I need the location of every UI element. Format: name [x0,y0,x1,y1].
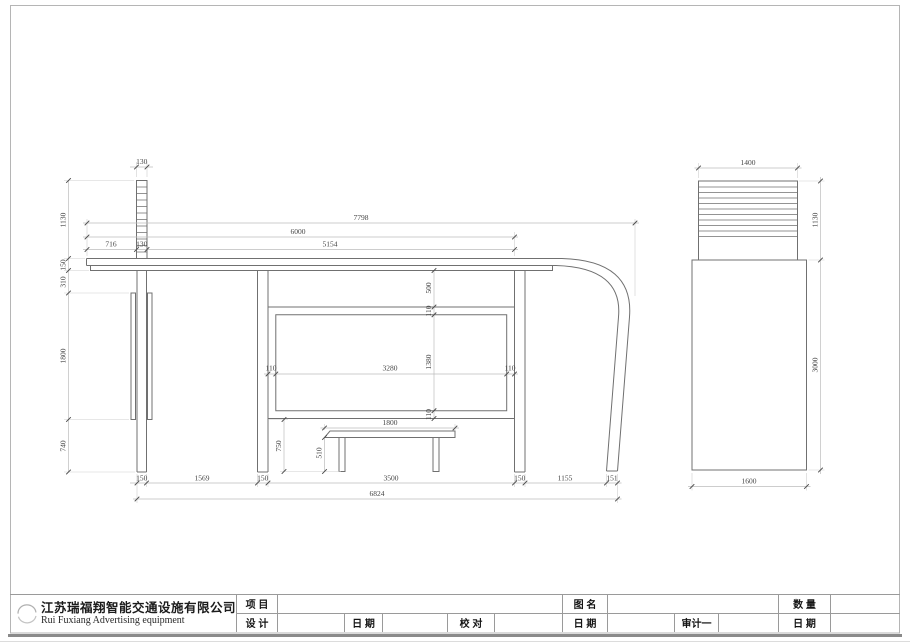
field-design-label: 设 计 [237,614,278,632]
dim-1130: 1130 [59,212,68,227]
side-sign-slats [699,187,798,237]
side-dimension-labels: 1400 1130 3000 1600 [741,158,820,486]
dim-base-150-a: 150 [136,474,148,483]
title-block: 江苏瑞福翔智能交通设施有限公司 Rui Fuxiang Advertising … [10,594,900,632]
dim-110-left: 110 [266,364,277,373]
dim-base-150-b: 150 [257,474,269,483]
column-right [515,271,526,473]
side-panel-left [131,293,136,420]
dim-150-roof: 150 [59,259,68,271]
field-date2-value [608,614,675,632]
side-panel-right [148,293,153,420]
sheet-border [11,6,900,634]
dim-3280: 3280 [383,364,398,373]
bench-seat [325,431,456,438]
field-project-value [278,595,563,613]
roof-inner-edge [87,266,619,472]
dim-1380: 1380 [424,354,433,369]
roof-lip [91,266,553,271]
field-date3-value [831,614,900,632]
dim-110-bottom: 110 [424,409,433,420]
title-block-row-2: 设 计 日 期 校 对 日 期 审计一 日 期 [237,614,900,632]
dim-716: 716 [105,240,117,249]
field-quantity-value [831,595,900,613]
sheet-bottom-border [8,634,902,637]
dim-6000: 6000 [291,227,306,236]
extension-lines [64,162,825,503]
dim-base-150-c: 150 [514,474,526,483]
field-date2-label: 日 期 [563,614,608,632]
field-design-value [278,614,345,632]
dim-side-1600: 1600 [742,477,757,486]
company-logo-icon [13,596,41,632]
front-dimension-labels: 130 7798 6000 716 130 5154 1130 150 310 … [59,157,618,498]
company-name-en: Rui Fuxiang Advertising equipment [41,615,236,627]
dim-110-right: 110 [505,364,516,373]
bench-leg-left [339,438,345,472]
cad-drawing-canvas: 130 7798 6000 716 130 5154 1130 150 310 … [0,0,910,644]
dim-total-6824: 6824 [370,489,385,498]
title-block-grid: 项 目 图 名 数 量 设 计 日 期 校 对 日 期 审计一 日 期 [237,595,900,632]
field-quantity-label: 数 量 [779,595,831,613]
dim-side-1400: 1400 [741,158,756,167]
dim-1569: 1569 [195,474,210,483]
field-drawing-name-value [608,595,779,613]
dim-side-3000: 3000 [811,357,820,372]
dim-1155: 1155 [558,474,573,483]
field-check-value [495,614,563,632]
dim-750: 750 [274,440,283,452]
roof-outer-edge [87,259,630,472]
dim-151: 151 [606,474,618,483]
title-block-row-1: 项 目 图 名 数 量 [237,595,900,614]
dim-5154: 5154 [323,240,338,249]
dimension-lines [69,167,821,499]
sign-post-lower [137,271,147,473]
dim-500: 500 [424,282,433,294]
field-date1-value [383,614,448,632]
dim-total-width: 7798 [354,213,369,222]
dim-post-width-roof: 130 [136,240,148,249]
field-audit-label: 审计一 [675,614,719,632]
side-elevation-view [692,181,807,470]
dim-740: 740 [59,440,68,452]
dim-side-1130: 1130 [811,212,820,227]
dim-3500: 3500 [384,474,399,483]
bench-leg-right [433,438,439,472]
dimension-ticks [66,165,823,502]
side-column-box [692,260,807,470]
field-project-label: 项 目 [237,595,278,613]
drawing-sheet: 130 7798 6000 716 130 5154 1130 150 310 … [0,0,910,644]
field-check-label: 校 对 [448,614,495,632]
dim-310: 310 [59,276,68,288]
company-block: 江苏瑞福翔智能交通设施有限公司 Rui Fuxiang Advertising … [10,595,237,632]
dim-post-width-top: 130 [136,157,148,166]
field-audit-value [719,614,779,632]
dim-110-top: 110 [424,305,433,316]
dim-bench-1800: 1800 [383,418,398,427]
field-date3-label: 日 期 [779,614,831,632]
field-drawing-name-label: 图 名 [563,595,608,613]
field-date1-label: 日 期 [345,614,383,632]
dim-1800-panel: 1800 [59,348,68,363]
dim-510: 510 [315,447,324,459]
company-name-cn: 江苏瑞福翔智能交通设施有限公司 [41,601,236,615]
sheet-edge-shadow [0,641,910,642]
